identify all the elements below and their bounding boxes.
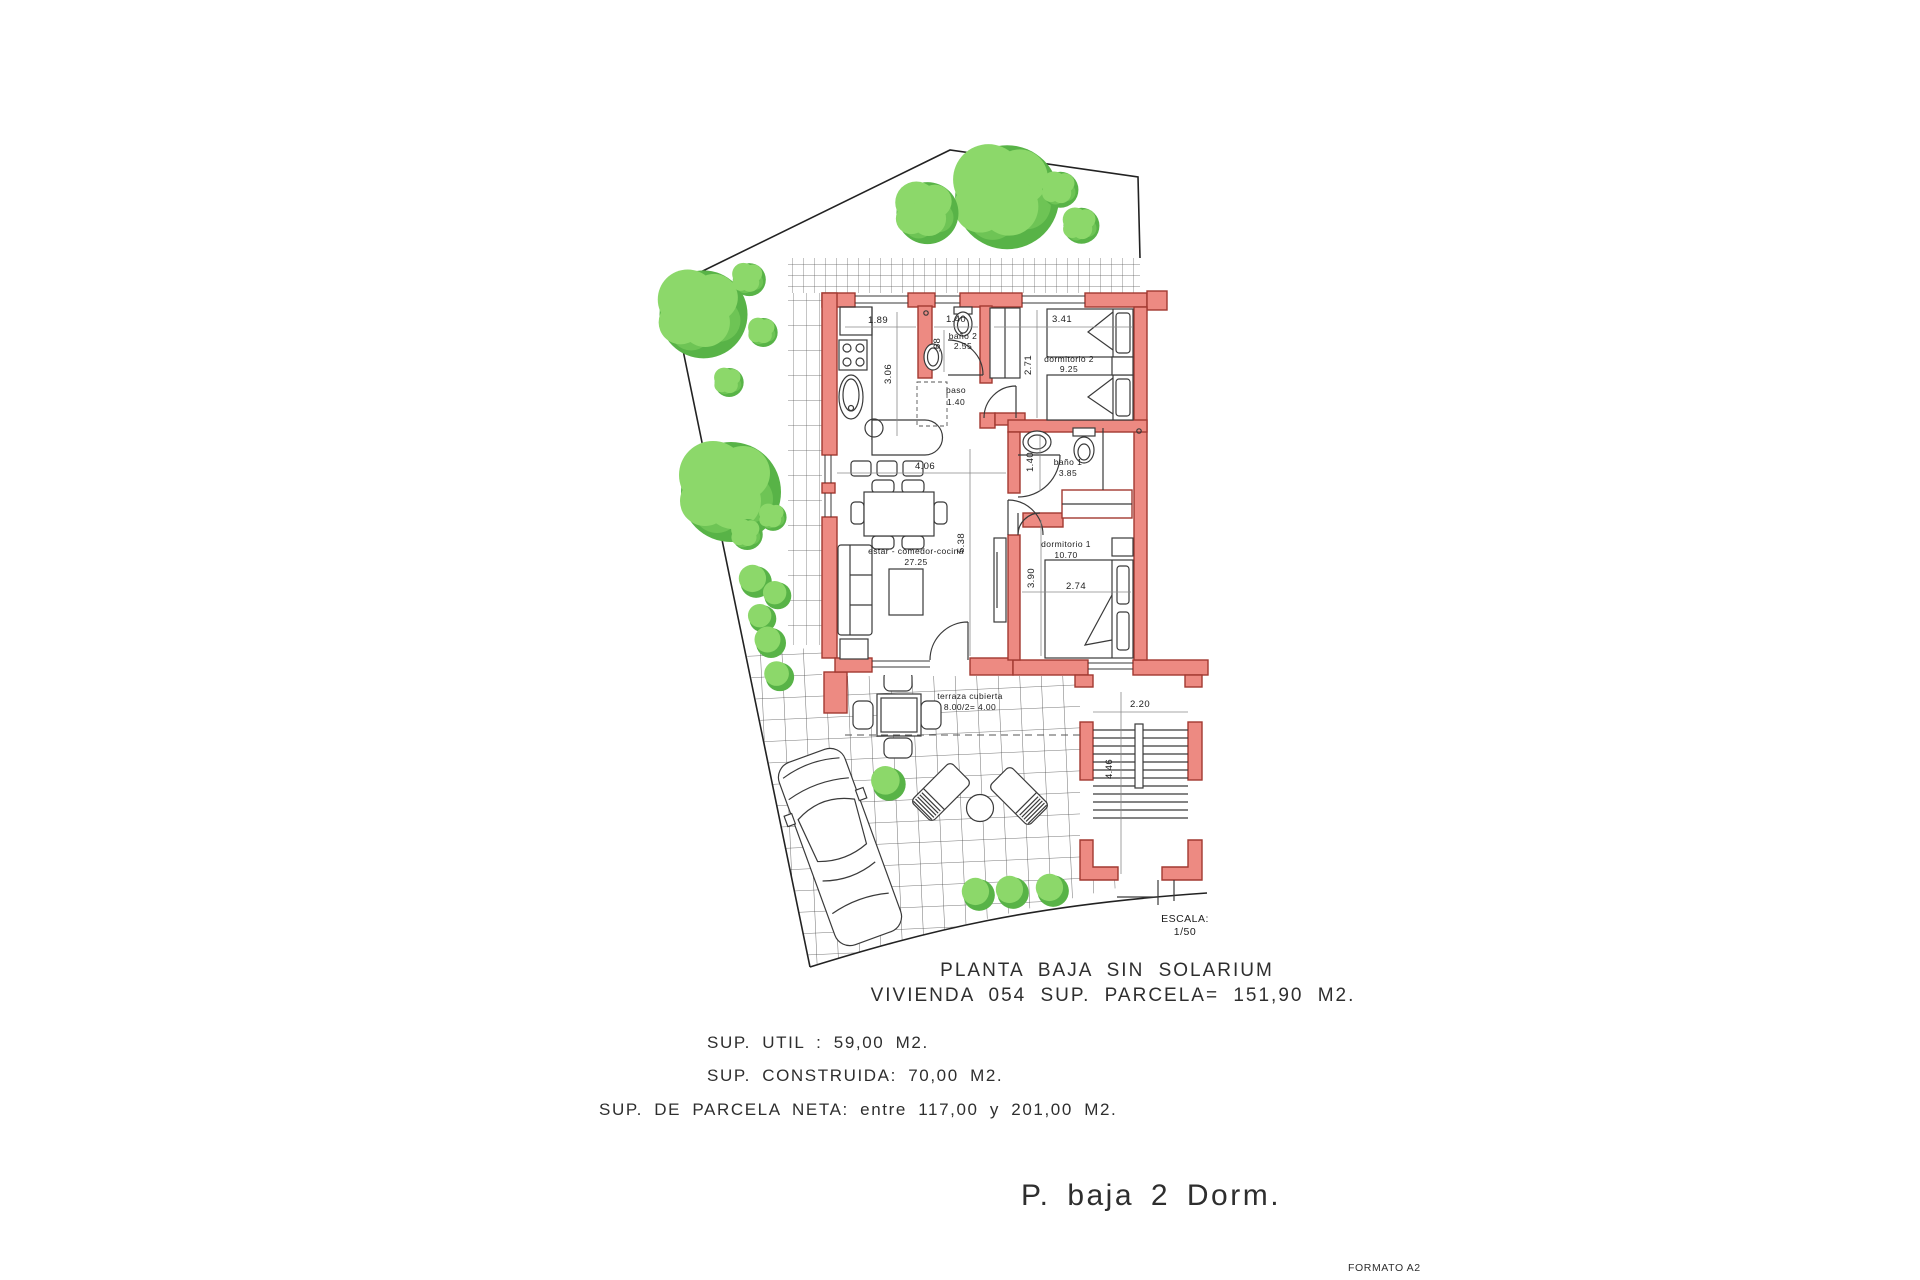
- room-label-dorm1: dormitorio 1: [1041, 539, 1091, 549]
- scale-note: ESCALA: 1/50: [1161, 913, 1209, 938]
- dim-bano2-w: 1.40: [946, 314, 966, 325]
- room-area-terraza: 8.00/2= 4.00: [944, 702, 996, 712]
- dim-stairs-h: 4.46: [1104, 759, 1115, 779]
- format-label: FORMATO A2: [1348, 1262, 1421, 1274]
- room-label-bano2: baño 2: [949, 331, 977, 341]
- dim-estar-w: 4.06: [915, 461, 935, 472]
- floor-plan-page: 1.89 1.40 3.41 3.06 .68 2.71 4.06 5.38 1…: [0, 0, 1920, 1280]
- room-label-dorm2: dormitorio 2: [1044, 354, 1094, 364]
- dim-bano2-d: .68: [932, 338, 943, 352]
- room-label-estar: estar - comedor-cocina: [868, 546, 964, 556]
- room-label-bano1: baño 1: [1054, 457, 1082, 467]
- scale-label: ESCALA:: [1161, 913, 1209, 925]
- dim-kitchen-w: 1.89: [868, 315, 888, 326]
- room-label-terraza: terraza cubierta: [937, 691, 1002, 701]
- sup-construida-text: SUP. CONSTRUIDA: 70,00 M2.: [707, 1066, 1003, 1085]
- dim-stairs-w: 2.20: [1130, 699, 1150, 710]
- dim-bano1-h: 1.40: [1025, 452, 1036, 472]
- paving-left-strip: [788, 293, 822, 645]
- room-area-dorm2: 9.25: [1060, 364, 1078, 374]
- sup-util-text: SUP. UTIL : 59,00 M2.: [707, 1033, 929, 1052]
- floor-plan-svg: 1.89 1.40 3.41 3.06 .68 2.71 4.06 5.38 1…: [0, 0, 1920, 1280]
- dim-dorm2-h: 2.71: [1023, 355, 1034, 375]
- plan-subtitle: VIVIENDA 054 SUP. PARCELA= 151,90 M2.: [871, 985, 1356, 1006]
- dim-dorm1-h: 3.90: [1026, 568, 1037, 588]
- scale-value: 1/50: [1174, 926, 1196, 938]
- dim-dorm1-w: 2.74: [1066, 581, 1086, 592]
- room-area-bano1: 3.85: [1059, 468, 1077, 478]
- garden-round-table: [967, 795, 994, 822]
- dim-dorm2-w: 3.41: [1052, 314, 1072, 325]
- room-area-estar: 27.25: [904, 557, 927, 567]
- plan-footer-title: P. baja 2 Dorm.: [1021, 1179, 1281, 1212]
- plan-title: PLANTA BAJA SIN SOLARIUM: [940, 960, 1274, 981]
- room-area-bano2: 2.55: [954, 341, 972, 351]
- paving-top-band: [788, 258, 1140, 293]
- room-area-paso: 1.40: [947, 397, 965, 407]
- sup-parcela-text: SUP. DE PARCELA NETA: entre 117,00 y 201…: [599, 1100, 1117, 1119]
- dim-kitchen-h: 3.06: [883, 364, 894, 384]
- room-label-paso: paso: [946, 385, 966, 395]
- title-block: PLANTA BAJA SIN SOLARIUM VIVIENDA 054 SU…: [599, 960, 1421, 1274]
- room-area-dorm1: 10.70: [1054, 550, 1077, 560]
